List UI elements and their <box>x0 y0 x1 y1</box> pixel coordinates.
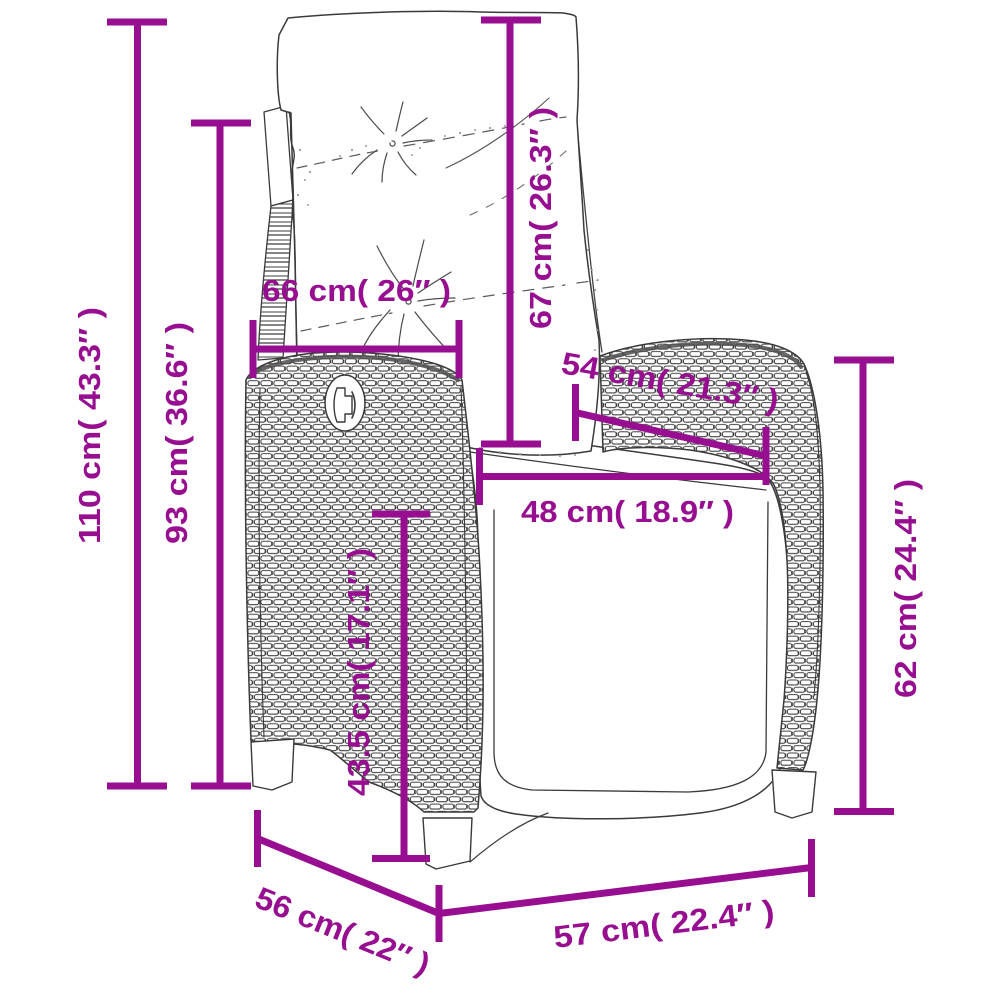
svg-text:66 cm( 26″ ): 66 cm( 26″ ) <box>262 273 451 308</box>
svg-text:48 cm( 18.9″ ): 48 cm( 18.9″ ) <box>521 494 734 529</box>
svg-text:43.5 cm( 17.1″ ): 43.5 cm( 17.1″ ) <box>341 548 376 796</box>
svg-text:67 cm( 26.3″ ): 67 cm( 26.3″ ) <box>523 107 558 329</box>
svg-text:110 cm( 43.3″ ): 110 cm( 43.3″ ) <box>72 307 107 544</box>
svg-text:62 cm( 24.4″ ): 62 cm( 24.4″ ) <box>888 479 923 698</box>
svg-text:93 cm( 36.6″ ): 93 cm( 36.6″ ) <box>159 322 194 544</box>
